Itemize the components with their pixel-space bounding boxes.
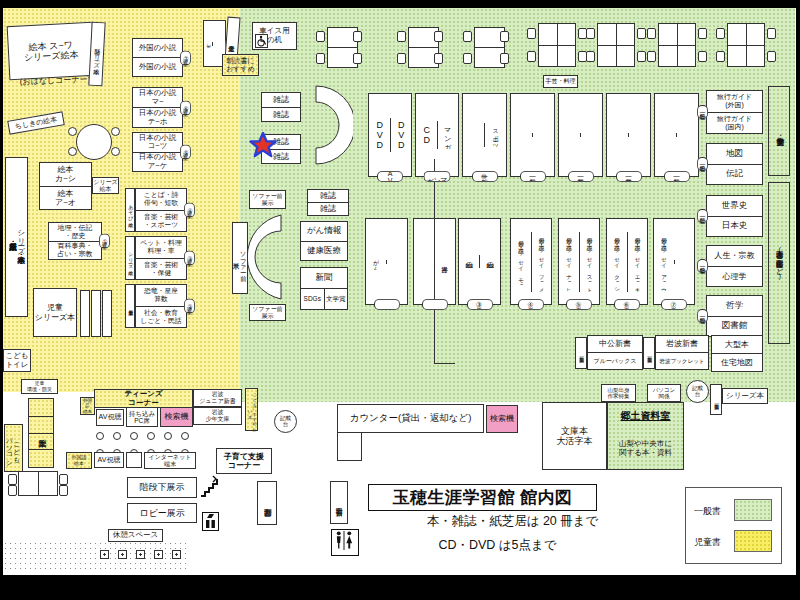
- study-table: [586, 23, 646, 67]
- byod-pc-seat: 持ち込み PC席: [126, 407, 158, 427]
- shelf-jfiction-essay-6: 日本の小説・エッセイ ク~シ日本の小説・エッセイ エ~キ文学⑥: [606, 218, 648, 305]
- label-pc-books: パソコン 関係: [647, 384, 681, 402]
- shelf-badge-shinsho: 一般新書: [710, 384, 722, 415]
- shelf-tax-politics: 税金・福祉政治・法律一般⑭: [654, 93, 699, 177]
- elevator-icon: [202, 512, 219, 531]
- page-title: 玉穂生涯学習館 館内図: [368, 484, 597, 511]
- shelf-badge: 一般⑮: [697, 105, 708, 119]
- shelf-badge: 一般⑩: [472, 171, 498, 182]
- shelf-kids-jfiction-2: 日本の小説 コ~ツ日本の小説 ア~ケ 児童⑤: [132, 132, 183, 172]
- shelf-badge: 児童③: [184, 251, 195, 266]
- shelf-iwanami-shinsho: 岩波新書岩波ブックレット: [655, 335, 709, 370]
- frame-left: [0, 0, 3, 600]
- label-asadoku-osusume: 朝読書に おすすめ: [222, 54, 259, 76]
- av-booth: AV視聴: [96, 409, 124, 426]
- health-info-rack: がん情報健康医療: [300, 221, 348, 261]
- shelf-new-books: 新刊図書: [330, 481, 348, 524]
- parenting-support-corner: 子育て支援 コーナー: [216, 448, 272, 474]
- shelf-kids-kyoryu: 恐竜・星座 算数社会・教育 しごと・民話 児童②: [135, 284, 187, 328]
- kids-pc: こども パソコン: [4, 424, 23, 472]
- shelf-jido-series: 児童 シリーズ本: [33, 288, 77, 337]
- shelf-series-ehon-strip: シリーズ絵本: [125, 236, 135, 280]
- shelf-badge: 医育: [374, 299, 400, 310]
- kids-toilet: こども トイレ: [3, 349, 31, 372]
- shelf-bunko: 文庫本 大活字本: [542, 402, 607, 470]
- shelf-kids-jfiction-1: 日本の小説 マ~日本の小説 テ~ホ 児童⑥: [132, 87, 183, 128]
- study-table: [316, 27, 374, 68]
- shelf-badge: 児童①: [99, 234, 110, 249]
- shelf-unit: [80, 290, 90, 337]
- shelf-ehon-kana: 絵本 カ~シ絵本 ア~オ: [39, 162, 92, 210]
- label-series-ehon: シリーズ 絵本: [92, 177, 119, 194]
- shelf-foreign-fiction: 外国の小説外国の小説文学③: [458, 218, 501, 305]
- shelf-badge: 一般⑪: [520, 171, 546, 182]
- shelf-badge: 一般⑯: [697, 157, 708, 171]
- label-sofa-display: ソファー前 展示: [249, 190, 286, 209]
- newspaper-rack: 新聞 SDGs文学賞: [300, 267, 348, 310]
- frame-top: [0, 0, 800, 8]
- shelf-chuko-shinsho: 中公新書ブルーバックス: [587, 335, 643, 370]
- shelf-badge: 文学③: [467, 299, 493, 310]
- study-table: [8, 471, 68, 496]
- rest-table: [154, 550, 163, 559]
- shelf-badge: 児童⑥: [180, 100, 191, 115]
- frame-right: [796, 0, 800, 600]
- shelf-badge: 児童⑤: [180, 145, 191, 160]
- loan-rule-books: 本・雑誌・紙芝居は 20 冊まで: [405, 513, 620, 530]
- shelf-kamishibai-tall: シリーズ本・点字絵本・布絵本・ 紙芝居・大型紙芝居・大型絵本: [5, 157, 28, 317]
- legend-label-children: 児童書: [694, 535, 730, 549]
- shelf-foreign-picture-books: 外国語 絵本: [66, 452, 92, 469]
- shelf-badge-shinsho: 一般新書: [643, 337, 655, 369]
- rest-table: [118, 550, 127, 559]
- shelf-bungaku-zenshu: 文学全集・叢書: [768, 86, 790, 176]
- wheelchair-icon: [255, 34, 268, 48]
- shelf-badge: 一般⑫: [568, 171, 594, 182]
- shelf-badge: 一般⑬: [616, 171, 642, 182]
- shelf-badge: 児童④: [184, 203, 195, 218]
- shelf-ehon-series: 絵本 ス~ワ シリーズ絵本: [7, 22, 96, 80]
- loan-rule-av: CD・DVD は5点まで: [405, 537, 590, 554]
- study-table: [527, 23, 587, 67]
- shelf-badge: 一般⑲: [697, 309, 708, 323]
- shelf-jfiction-essay-5: 日本の小説・エッセイ ナ~ヒ日本の小説・エッセイ ス~ト文学⑤: [558, 218, 600, 305]
- study-table: [397, 27, 455, 68]
- search-kiosk: 検索機: [486, 405, 518, 433]
- shelf-iwanami-junior: 岩波 ジュニア新書: [193, 389, 242, 407]
- legend-swatch-general: [734, 499, 772, 521]
- sofa: [313, 84, 353, 166]
- chair: [111, 147, 120, 156]
- chair: [68, 147, 77, 156]
- search-kiosk: 検索機: [160, 407, 193, 427]
- shelf-asobi-ehon: あそび絵本: [125, 188, 135, 232]
- rest-table: [100, 550, 109, 559]
- local-history-room: 郷土資料室 山梨や中央市に 関する本・資料: [607, 402, 684, 470]
- shelf-badge: 文学④: [518, 299, 544, 310]
- restroom-icon: [331, 529, 359, 556]
- shelf-iwanami-shonen: 岩波 少年文庫: [193, 407, 242, 425]
- rest-table: [136, 550, 145, 559]
- study-table: [463, 27, 521, 68]
- shelf-badge: 一般⑱: [697, 259, 708, 273]
- shelf-reference-books: 参考図書(図鑑・辞書など): [768, 182, 790, 344]
- current-location-star: [249, 131, 277, 159]
- shelf-badge: 一般⑭: [664, 171, 690, 182]
- shelf-ogata-ehon: 大型絵本: [28, 398, 54, 468]
- shelf-kids-environment: 児童 環境・防災: [21, 379, 58, 394]
- shelf-dvd: DVDDVDAV: [368, 93, 412, 177]
- teens-corner: ティーンズ コーナー: [94, 389, 193, 408]
- study-table: [647, 23, 707, 67]
- stair-display: 階段下展示: [127, 477, 197, 498]
- shelf-travel-guide: 旅行ガイド (外国)旅行ガイド (国内)一般⑮: [706, 90, 763, 134]
- shelf-kids-pet: ペット・料理 料理・車音楽・芸術 ・保健 児童③: [135, 236, 187, 280]
- shelf-badge: 文学⑤: [566, 299, 592, 310]
- chair: [111, 127, 120, 136]
- shelf-foreign-picture-books: 外国語 絵本: [80, 397, 95, 415]
- shelf-badge: 文学⑥: [614, 299, 640, 310]
- label-sofa-display: ソファー前 展示: [249, 304, 286, 321]
- chair: [68, 127, 77, 136]
- round-table: [76, 124, 112, 160]
- writing-stand: 記載 台: [686, 380, 709, 403]
- shelf-kids-ogata-strip: 児童大型本: [125, 284, 135, 328]
- lobby-display: ロビー展示: [127, 503, 197, 523]
- shelf-language-music: 日本語・外国語スポーツ・音楽・演劇一般⑩: [462, 93, 507, 177]
- magazine-rack: 雑誌雑誌: [261, 92, 301, 122]
- legend: 一般書 児童書: [685, 487, 782, 564]
- shelf-kids-chiri: 地理・伝記 ・歴史百科事典・ 占い・宗教 児童①: [48, 222, 102, 260]
- shelf-unit: [102, 290, 112, 337]
- shelf-kids-foreign-fiction: 外国の小説外国の小説 児童⑦: [132, 38, 183, 77]
- shelf-badge-shinsho: 一般新書: [575, 337, 587, 369]
- shelf-large-books: 大型本住宅地図: [711, 335, 763, 372]
- shelf-badge: 文学⑦: [661, 299, 687, 310]
- shelf-badge: 児童②: [184, 299, 195, 314]
- legend-label-general: 一般書: [694, 504, 730, 518]
- frame-bottom: [0, 575, 800, 600]
- shelf-life-religion: 人生・宗教心理学一般⑱: [706, 245, 763, 287]
- shelf-jfiction-essay-7: 日本の小説・エッセイ ア~ウ文学・俳句・詩文学⑦: [653, 218, 695, 305]
- seat-row: [96, 432, 189, 440]
- shelf-series-bon: シリーズ本: [722, 388, 768, 404]
- shelf-badge: AV: [377, 171, 403, 182]
- shelf-history: 世界史日本史一般⑰: [706, 195, 763, 237]
- internet-terminal: インターネット 端末: [144, 452, 196, 469]
- shelf-art-tourism: 芸術・美術観光・産業一般⑪: [510, 93, 555, 177]
- service-counter-wing: [337, 432, 362, 461]
- shelf-science-folklore: 数学・自然科学民俗・教育一般⑬: [606, 93, 651, 177]
- label-yamanashi-authors: 山梨出身 作家特集: [601, 384, 636, 402]
- stairs-icon: [200, 475, 218, 497]
- magazine-rack: 雑誌雑誌: [307, 189, 349, 216]
- service-counter: カウンター(貸出・返却など): [337, 404, 484, 433]
- shelf-new-books: 新刊図書: [257, 481, 277, 525]
- shelf-kids-kotoba: ことば・詩 俳句・短歌音楽・芸術 ・スポーツ 児童④: [135, 188, 187, 232]
- sofa: [248, 213, 284, 301]
- shelf-badge: 一般⑰: [697, 209, 708, 223]
- shelf-medical-1: がん情報・医療・医学医療・医学医育: [365, 218, 408, 305]
- shelf-craft-tech: 手芸・料理・家事技術・工業一般⑫: [558, 93, 603, 177]
- shelf-unit: [91, 290, 101, 337]
- shelf-philosophy: 哲学図書館一般⑲: [706, 295, 763, 337]
- label-shugei-ryori: 手芸・料理: [543, 75, 578, 88]
- study-table: [716, 23, 776, 67]
- shelf-map-biography: 地図伝記一般⑯: [706, 143, 763, 185]
- shelf-badge: 児童⑦: [180, 50, 191, 65]
- shelf-badge: 医育: [422, 299, 448, 310]
- writing-stand: 記載 台: [274, 410, 297, 433]
- legend-swatch-children: [734, 530, 772, 552]
- av-booth: AV視聴: [94, 452, 124, 468]
- shelf-jfiction-essay-4: 日本の小説・エッセイ モ~日本の小説・エッセイ フ~メ文学④: [510, 218, 552, 305]
- shelf-medical-2: 医学・医学 洋書 育児・医学 医育: [413, 218, 456, 305]
- label-sofa-display: ソファー前 展示: [232, 222, 248, 294]
- shelf-badge: マンガ: [424, 171, 451, 182]
- booth: [126, 452, 142, 468]
- rest-table: [172, 550, 181, 559]
- label-kids-recommend: こどもにすすめたい本: [245, 388, 258, 431]
